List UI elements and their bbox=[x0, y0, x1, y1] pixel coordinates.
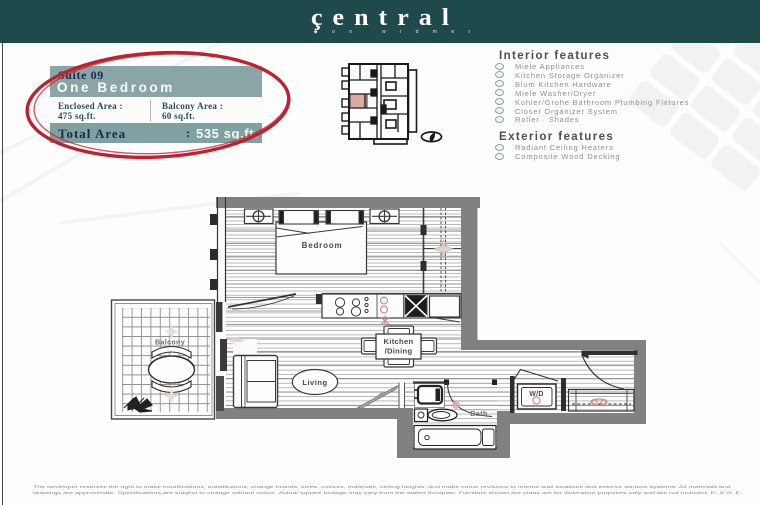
svg-text:Balcony: Balcony bbox=[155, 340, 185, 347]
svg-text:Kitchen: Kitchen bbox=[384, 337, 414, 346]
svg-text:/Dining: /Dining bbox=[385, 347, 413, 356]
svg-text:Bath: Bath bbox=[470, 409, 488, 418]
svg-text:Bedroom: Bedroom bbox=[302, 241, 343, 250]
svg-text:Living: Living bbox=[302, 378, 327, 387]
svg-text:W/D: W/D bbox=[529, 391, 544, 398]
